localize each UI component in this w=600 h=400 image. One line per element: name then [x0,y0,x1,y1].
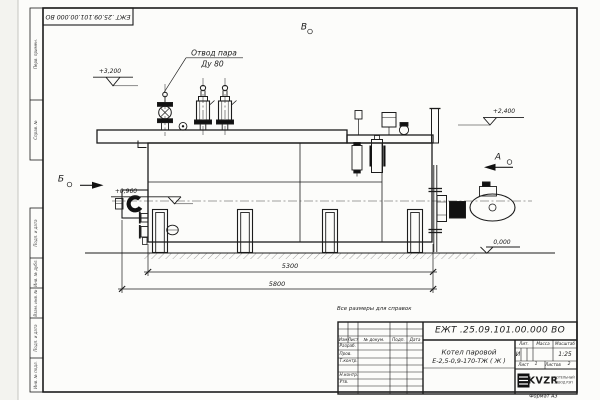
margin-label-podp-data-2: Подп. и дата [29,318,43,358]
scale-value: 1:25 [558,352,571,358]
format-note: Формат А3 [529,394,557,399]
product-name-line1: Котел паровой [442,349,497,356]
elevation-3200-label: +3,200 [99,69,121,75]
drawing-canvas [0,0,600,400]
steam-outlet-callout-line1: Отвод пара [191,49,237,57]
role-utv: Утв. [340,380,349,384]
safety-valve-icon [195,85,215,130]
margin-label-inv-podl: Инв. № подл. [29,358,43,392]
col-header-izm: Изм [339,338,348,342]
centerline [112,78,532,201]
view-b-label: Б [58,175,64,184]
burner-icon [116,190,149,245]
elevation-0000-label: 0,000 [493,240,510,246]
view-a-label: А [495,154,501,163]
role-razrab: Разраб. [340,344,356,348]
role-tkontr: Т.контр. [340,359,358,363]
dimension-5300-label: 5300 [282,262,299,269]
sheets-total-value: 2 [568,363,571,368]
steam-outlet-callout-line2: Ду 80 [201,60,223,68]
sheet-no-label: Лист [518,363,529,367]
drawing-sheet: ЕЖТ .25.09.101.00.000 ВО Перв. примен. С… [0,0,600,400]
sheet-no-value: 1 [535,363,538,368]
elevation-2400-label: +2,400 [493,109,515,115]
margin-label-inv-dubl: Инв. № дубл. [29,258,43,288]
margin-label-perv-primen: Перв. примен. [29,8,43,100]
view-b-top-label: В [301,23,307,32]
boiler-drawing [67,29,555,293]
dimension-5800-label: 5800 [269,280,286,287]
manhole-icon [167,225,179,235]
pressure-gauge-icon [179,122,187,130]
col-header-sign: Подп. [392,338,405,342]
title-block-doc-number: ЕЖТ .25.09.101.00.000 ВО [435,327,565,336]
corner-stamp-text: ЕЖТ .25.09.101.00.000 ВО [43,8,133,25]
lit-label: Лит. [519,342,529,346]
margin-label-podp-data-1: Подп. и дата [29,208,43,258]
role-prov: Пров. [340,352,352,356]
product-name-line2: Е-2,5-0,9-170-ТЖ ( Ж ) [432,359,505,365]
role-nkontr: Н.контр. [340,373,359,377]
kvzr-logo-sub2: ЗАВОД РЭП [554,381,572,384]
col-header-doc: № докум. [364,338,385,342]
elevation-0960-label: +0,960 [115,189,137,195]
sheets-total-label: Листов [545,363,561,367]
ground [85,253,555,259]
lit-value: И [516,352,521,358]
top-fittings [355,109,441,144]
level-gauge-icon [352,143,362,177]
view-arrows [67,29,513,189]
scale-label: Масштаб [555,342,575,346]
safety-valve-icon [217,85,237,130]
level-column-icon [370,136,386,173]
mass-label: Масса [536,342,549,346]
reference-note: Все размеры для справок [337,307,412,313]
margin-label-sprav-no: Справ. № [29,100,43,160]
margin-label-vzam-inv: Взам. инв. № [29,288,43,318]
col-header-date: Дата [410,338,421,342]
kvzr-logo-sub1: КОТЕЛЬНЫЙ [554,376,574,379]
col-header-list: Лист [348,338,359,342]
